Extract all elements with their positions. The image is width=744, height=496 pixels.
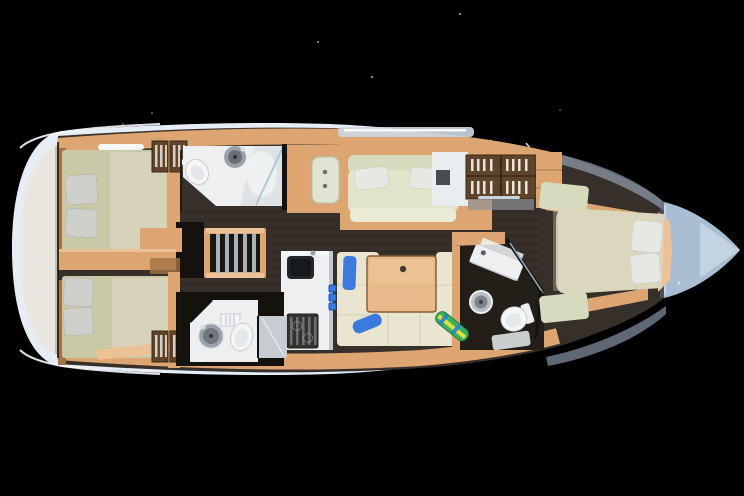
grab-rail [478,196,520,199]
vanity-step [140,228,182,252]
yacht-floorplan-render [0,0,744,496]
stairs-rail-top [206,228,264,233]
head-bulkhead [282,144,287,210]
hatch-highlight [344,129,466,132]
blue-back-cushion [342,256,356,290]
stove [287,314,318,348]
pillow [65,174,98,205]
stairs-rail-bottom [206,273,264,278]
divider-step [150,258,180,274]
aft-head-starboard [176,292,287,366]
deck-fitting [678,282,681,285]
ceiling-light-bar [98,144,144,150]
table-fitting [400,266,406,272]
pillow [63,277,93,306]
sink [199,324,224,349]
divider-highlight [58,249,176,252]
galley [281,251,336,351]
pillow [65,208,97,238]
pillow [354,166,389,190]
pillow [630,220,663,254]
sink [224,146,246,168]
companionway-stairs [204,228,266,278]
saloon-table [367,256,436,312]
head-door [287,145,347,213]
foredeck-highlight [700,222,740,278]
pillow [63,307,93,335]
sliding-hatch [338,127,474,137]
settee-front-edge [350,208,456,222]
galley-switches [329,285,336,310]
towel [221,314,240,326]
berth-foot-shadow [553,211,558,291]
locker-base [468,199,534,210]
sink [470,291,492,313]
counter-highlight [281,251,332,255]
cabinet-inset [436,170,450,185]
door-panel [312,157,339,203]
background-specks [122,13,561,125]
pillow [630,253,661,284]
corner-seat-bottom [539,292,590,324]
